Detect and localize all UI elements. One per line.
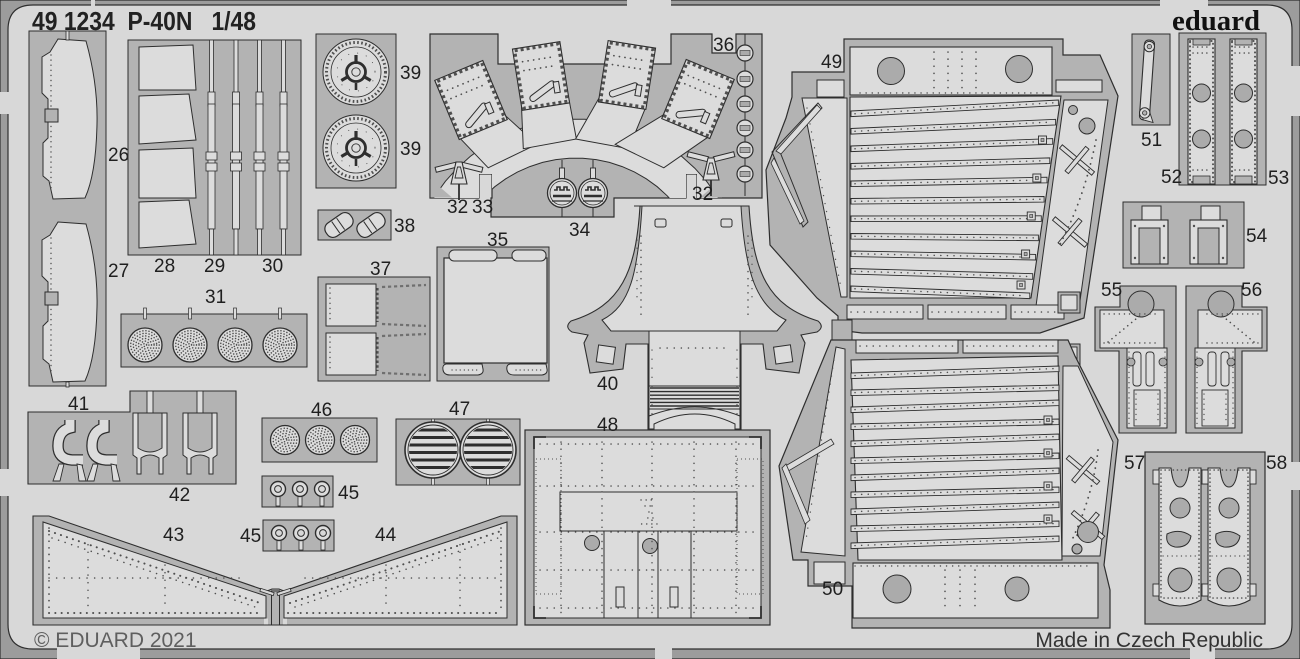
svg-text:eduard: eduard xyxy=(1172,5,1260,37)
svg-text:27: 27 xyxy=(108,261,129,282)
svg-text:36: 36 xyxy=(713,35,734,56)
svg-text:45: 45 xyxy=(338,483,359,504)
svg-text:58: 58 xyxy=(1266,453,1287,474)
svg-text:38: 38 xyxy=(394,216,415,237)
svg-text:47: 47 xyxy=(449,399,470,420)
svg-text:33: 33 xyxy=(472,197,493,218)
svg-text:© EDUARD 2021: © EDUARD 2021 xyxy=(34,629,197,652)
svg-text:39: 39 xyxy=(400,139,421,160)
svg-text:Made in Czech Republic: Made in Czech Republic xyxy=(1035,629,1263,652)
svg-text:43: 43 xyxy=(163,525,184,546)
svg-text:31: 31 xyxy=(205,287,226,308)
svg-text:28: 28 xyxy=(154,256,175,277)
svg-text:49: 49 xyxy=(821,52,842,73)
svg-text:35: 35 xyxy=(487,230,508,251)
svg-text:39: 39 xyxy=(400,63,421,84)
svg-text:55: 55 xyxy=(1101,280,1122,301)
svg-text:46: 46 xyxy=(311,400,332,421)
svg-text:52: 52 xyxy=(1161,167,1182,188)
svg-text:57: 57 xyxy=(1124,453,1145,474)
svg-text:30: 30 xyxy=(262,256,283,277)
svg-text:56: 56 xyxy=(1241,280,1262,301)
svg-text:42: 42 xyxy=(169,485,190,506)
svg-text:29: 29 xyxy=(204,256,225,277)
svg-text:48: 48 xyxy=(597,415,618,436)
svg-text:37: 37 xyxy=(370,259,391,280)
svg-text:54: 54 xyxy=(1246,226,1268,247)
svg-text:40: 40 xyxy=(597,374,618,395)
svg-text:41: 41 xyxy=(68,394,89,415)
svg-text:34: 34 xyxy=(569,220,591,241)
svg-text:32: 32 xyxy=(447,197,468,218)
svg-text:51: 51 xyxy=(1141,130,1162,151)
svg-text:44: 44 xyxy=(375,525,397,546)
svg-text:32: 32 xyxy=(692,184,713,205)
svg-text:50: 50 xyxy=(822,579,843,600)
svg-text:45: 45 xyxy=(240,526,261,547)
svg-text:26: 26 xyxy=(108,145,129,166)
svg-text:53: 53 xyxy=(1268,168,1289,189)
